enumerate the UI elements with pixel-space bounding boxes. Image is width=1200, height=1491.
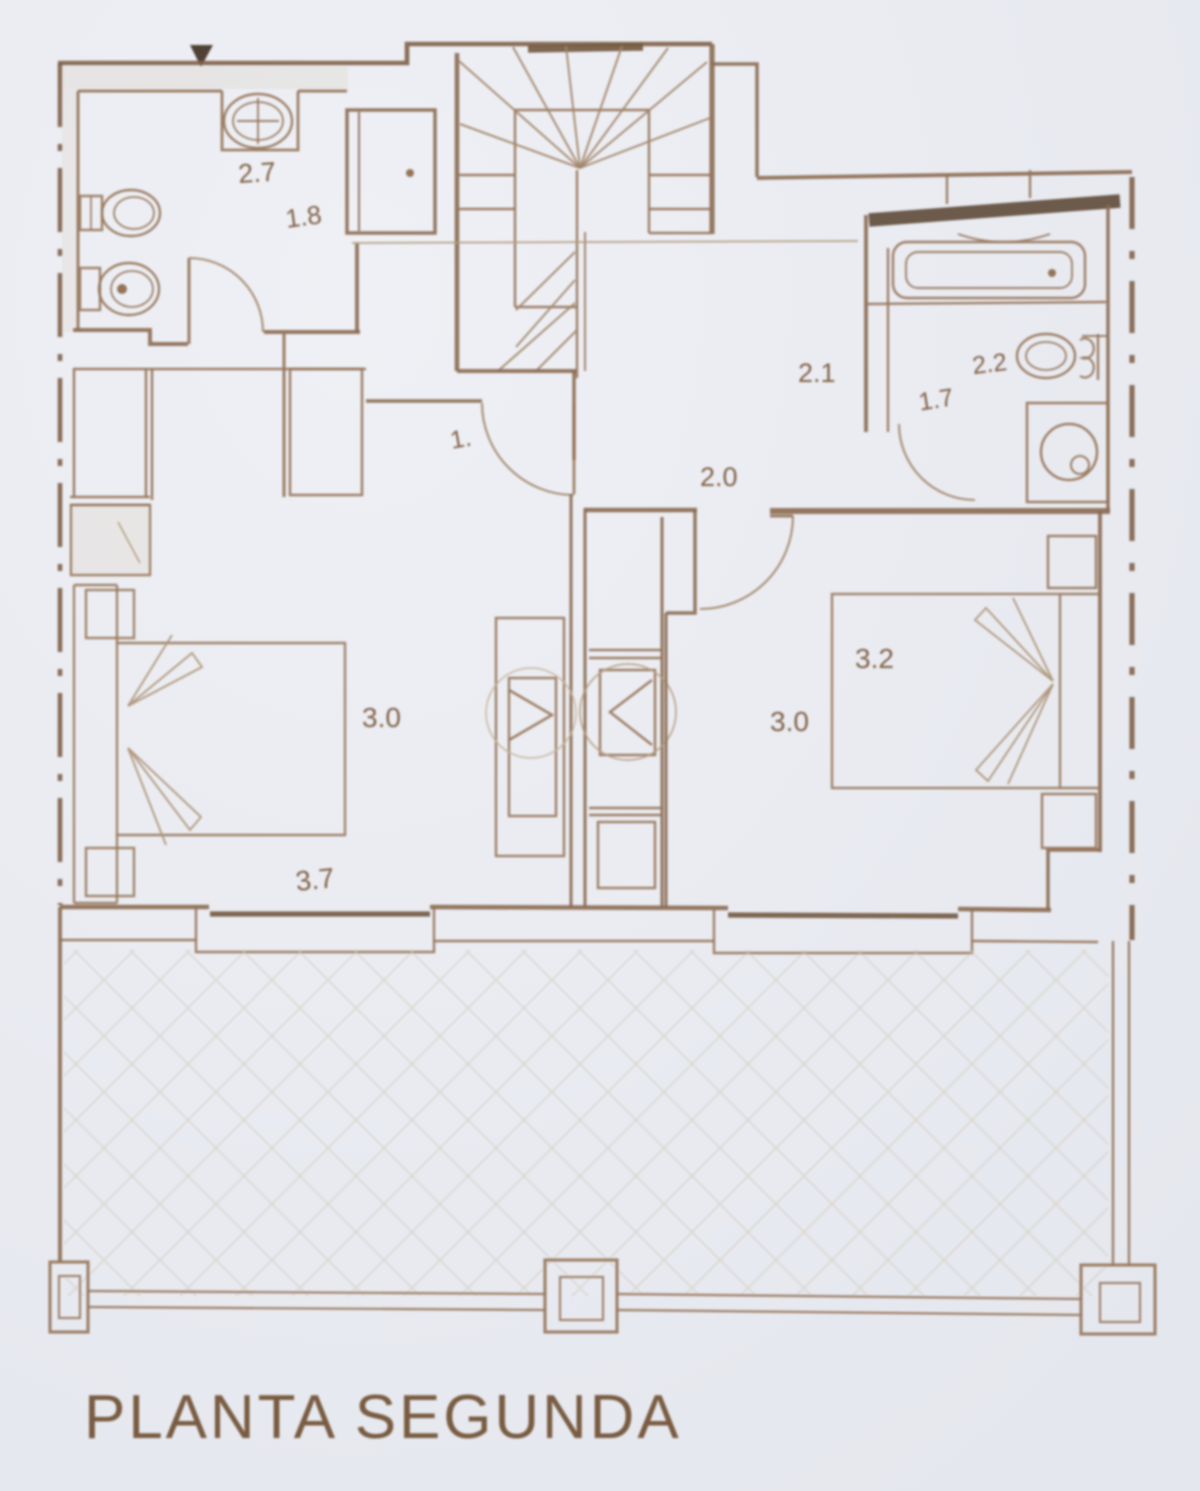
svg-text:1.7: 1.7 [917,384,956,417]
svg-text:2.7: 2.7 [237,157,277,190]
svg-text:3.0: 3.0 [770,706,809,737]
svg-text:3.2: 3.2 [855,643,894,674]
svg-text:3.7: 3.7 [294,862,336,897]
svg-text:3.0: 3.0 [362,702,401,733]
svg-text:2.2: 2.2 [971,348,1009,380]
svg-text:2.0: 2.0 [700,462,738,492]
svg-text:PLANTA SEGUNDA: PLANTA SEGUNDA [84,1383,682,1452]
svg-text:2.1: 2.1 [798,358,836,388]
svg-text:1.8: 1.8 [283,199,323,234]
